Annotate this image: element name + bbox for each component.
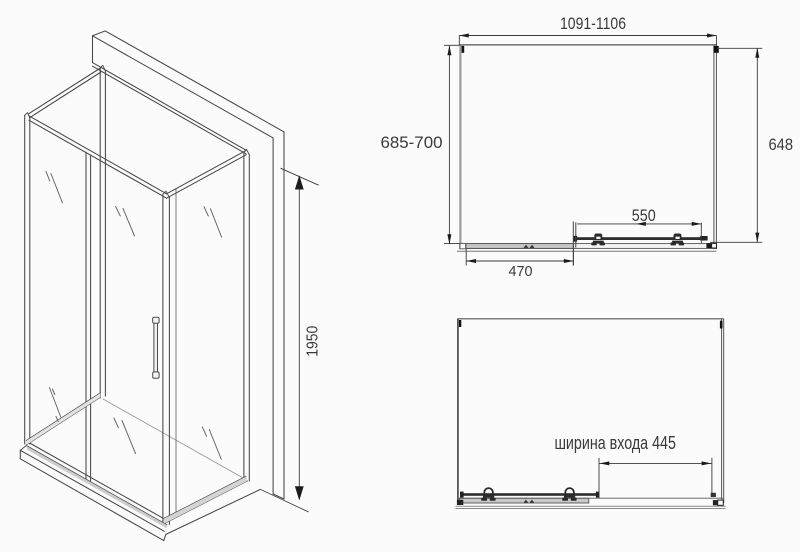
svg-text:470: 470	[509, 263, 533, 280]
svg-text:1091-1106: 1091-1106	[560, 15, 626, 33]
svg-text:550: 550	[632, 207, 656, 225]
svg-text:648: 648	[769, 136, 794, 154]
svg-text:ширина входа 445: ширина входа 445	[554, 433, 676, 453]
svg-text:685-700: 685-700	[381, 134, 443, 152]
svg-text:1950: 1950	[305, 326, 322, 357]
